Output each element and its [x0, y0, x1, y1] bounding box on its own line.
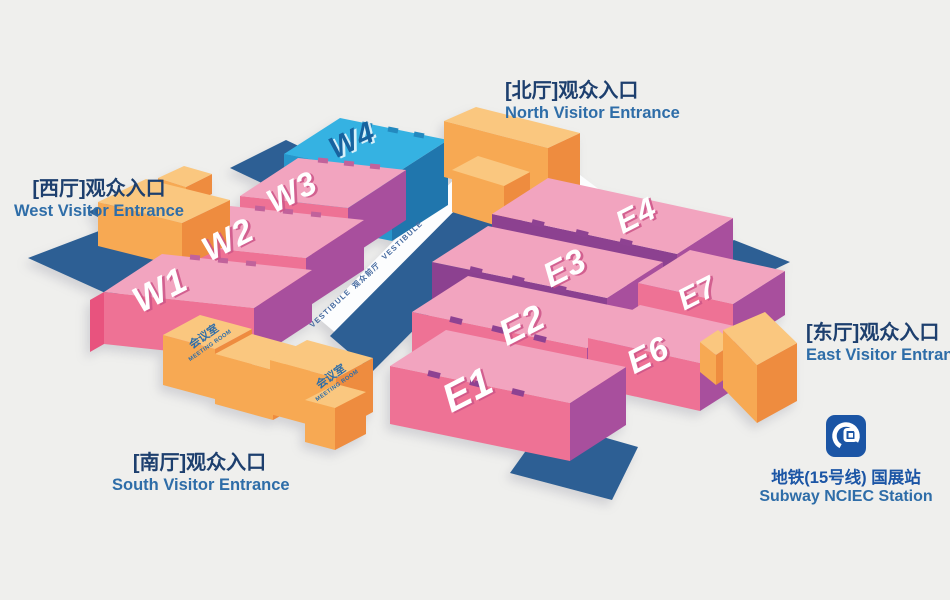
subway-zh: 地铁(15号线) 国展站: [756, 464, 936, 488]
north-entrance-zh: [北厅]观众入口: [505, 80, 680, 104]
east-entrance-zh: [东厅]观众入口: [806, 322, 950, 346]
subway-en: Subway NCIEC Station: [756, 488, 936, 506]
south-entrance-en: South Visitor Entrance: [112, 476, 287, 495]
north-entrance-label: [北厅]观众入口 North Visitor Entrance: [505, 80, 680, 123]
exhibition-center-map: VESTIBULE 观众前厅 VESTIBULE 会议室 MEETING ROO…: [0, 0, 950, 600]
west-entrance-label: [西厅]观众入口 West Visitor Entrance: [14, 178, 184, 221]
west-entrance-en: West Visitor Entrance: [14, 202, 184, 221]
north-entrance-en: North Visitor Entrance: [505, 104, 680, 123]
south-entrance-label: [南厅]观众入口 South Visitor Entrance: [112, 452, 287, 495]
subway-station-marker: 地铁(15号线) 国展站 Subway NCIEC Station: [756, 414, 936, 506]
map-canvas: VESTIBULE 观众前厅 VESTIBULE 会议室 MEETING ROO…: [0, 0, 950, 600]
east-entrance-label: [东厅]观众入口 East Visitor Entrance: [806, 322, 950, 365]
subway-logo-icon: [825, 414, 867, 458]
east-entrance-en: East Visitor Entrance: [806, 346, 950, 365]
south-entrance-zh: [南厅]观众入口: [112, 452, 287, 476]
hall-w1-west-face: [90, 292, 104, 352]
meeting-box4-front: [305, 400, 335, 450]
west-entrance-zh: [西厅]观众入口: [14, 178, 184, 202]
